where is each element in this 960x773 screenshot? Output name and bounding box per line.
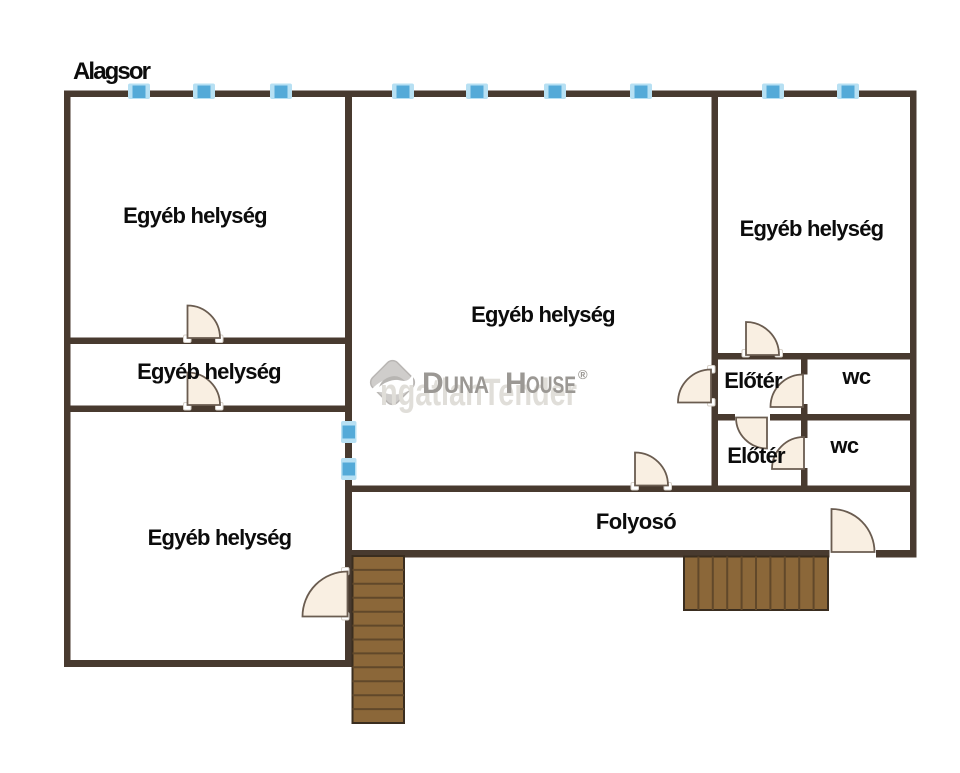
svg-text:Egyéb helység: Egyéb helység	[123, 203, 267, 228]
svg-text:H: H	[505, 367, 527, 400]
svg-text:UNA: UNA	[444, 372, 489, 399]
svg-text:Előtér: Előtér	[727, 443, 786, 468]
svg-text:Előtér: Előtér	[724, 368, 783, 393]
svg-text:wc: wc	[841, 364, 871, 389]
svg-text:®: ®	[578, 367, 588, 382]
svg-text:Egyéb helység: Egyéb helység	[740, 216, 884, 241]
svg-text:Egyéb helység: Egyéb helység	[471, 302, 615, 327]
svg-text:Egyéb helység: Egyéb helység	[137, 359, 281, 384]
svg-text:OUSE: OUSE	[526, 372, 576, 399]
svg-text:D: D	[422, 367, 444, 400]
svg-text:wc: wc	[829, 433, 859, 458]
svg-text:Alagsor: Alagsor	[73, 58, 151, 85]
svg-text:Egyéb helység: Egyéb helység	[148, 525, 292, 550]
svg-text:Folyosó: Folyosó	[596, 509, 676, 534]
